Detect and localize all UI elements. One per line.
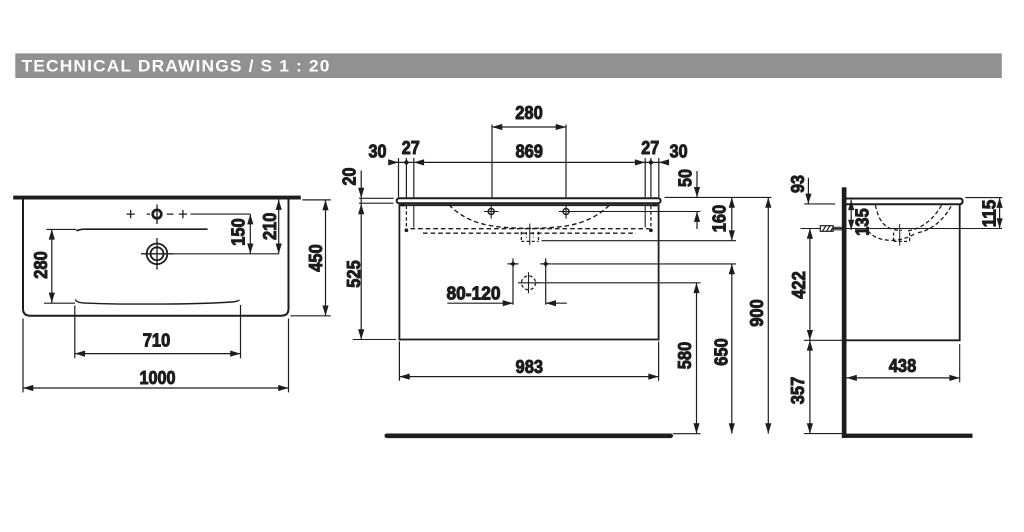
- svg-text:30: 30: [670, 141, 688, 162]
- svg-text:TECHNICAL DRAWINGS / S 1 : 20: TECHNICAL DRAWINGS / S 1 : 20: [22, 57, 331, 76]
- svg-text:650: 650: [710, 338, 731, 366]
- svg-text:1000: 1000: [140, 367, 176, 388]
- svg-text:115: 115: [979, 200, 1000, 228]
- svg-text:900: 900: [746, 299, 767, 327]
- svg-text:280: 280: [30, 251, 51, 279]
- svg-text:438: 438: [889, 355, 917, 376]
- svg-text:135: 135: [852, 208, 873, 236]
- svg-text:422: 422: [788, 271, 809, 299]
- svg-text:93: 93: [787, 175, 808, 193]
- svg-text:357: 357: [787, 377, 808, 405]
- svg-text:210: 210: [259, 213, 280, 241]
- svg-text:525: 525: [343, 260, 364, 288]
- svg-text:80-120: 80-120: [447, 282, 501, 303]
- svg-text:280: 280: [515, 102, 543, 123]
- svg-text:160: 160: [709, 205, 730, 233]
- svg-text:150: 150: [228, 218, 249, 246]
- svg-text:580: 580: [674, 342, 695, 370]
- svg-text:983: 983: [516, 356, 544, 377]
- svg-text:50: 50: [674, 169, 695, 187]
- svg-text:27: 27: [402, 137, 420, 158]
- svg-text:27: 27: [641, 137, 659, 158]
- svg-text:710: 710: [143, 330, 171, 351]
- svg-text:20: 20: [339, 168, 360, 186]
- svg-text:450: 450: [305, 244, 326, 272]
- svg-text:30: 30: [369, 141, 387, 162]
- svg-text:869: 869: [515, 141, 543, 162]
